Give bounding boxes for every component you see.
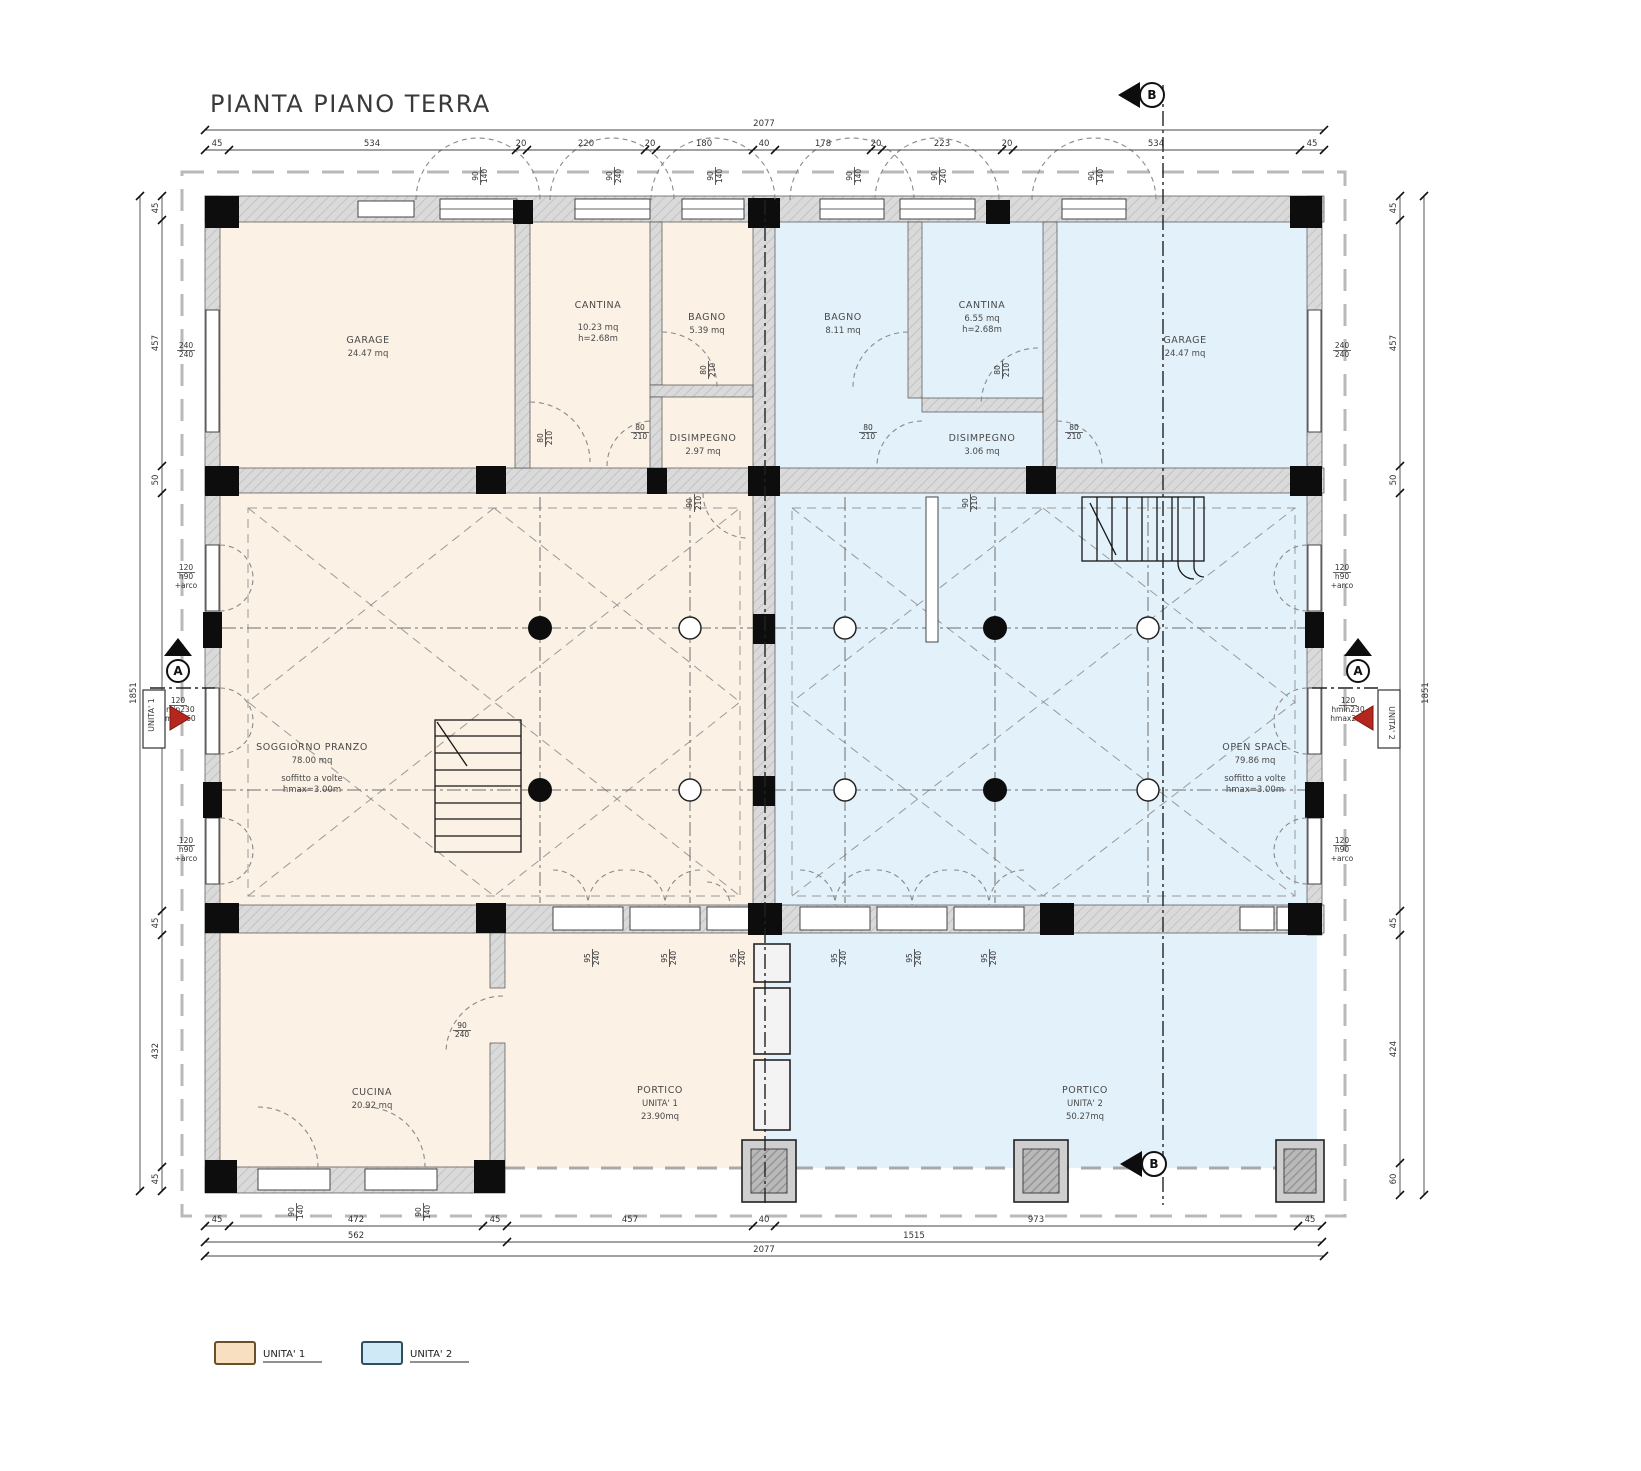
opening-size-label: 240 — [614, 169, 623, 184]
dimension-label: 45 — [151, 918, 161, 929]
portico-pillar — [1014, 1140, 1068, 1202]
opening-size-label: 90 — [287, 1207, 296, 1217]
dim-right-total: 1851 — [1421, 682, 1431, 704]
opening-size-label: 210 — [708, 363, 717, 378]
dimension-label: 457 — [151, 335, 161, 351]
opening-size-label: 90 — [457, 1021, 467, 1030]
room-soggiorno-note1: soffitto a volte — [281, 774, 342, 784]
opening-size-label: 90 — [685, 498, 694, 508]
room-garage2-area: 24.47 mq — [1165, 349, 1206, 359]
dimension-label: 424 — [1389, 1041, 1399, 1057]
dimension-label: 1515 — [903, 1231, 925, 1241]
legend-unit2-swatch — [362, 1342, 402, 1364]
opening-size-label: 140 — [480, 169, 489, 184]
room-disimpegno2-area: 3.06 mq — [964, 447, 999, 457]
unit2-tag-label: UNITA' 2 — [1387, 706, 1396, 740]
opening-size-label: 210 — [970, 496, 979, 511]
room-portico2-unit: UNITA' 2 — [1067, 1099, 1103, 1109]
dimension-label: 40 — [759, 139, 770, 149]
legend-unit1-label: UNITA' 1 — [263, 1349, 305, 1360]
room-cucina-area: 20.92 mq — [352, 1101, 393, 1111]
room-bagno2-area: 8.11 mq — [825, 326, 860, 336]
room-portico1-unit: UNITA' 1 — [642, 1099, 678, 1109]
opening-size-label: 240 — [939, 169, 948, 184]
opening-size-label: 120 — [179, 836, 194, 845]
opening-size-label: 80 — [863, 423, 873, 432]
opening-size-label: h90 — [179, 845, 194, 854]
room-openspace-note1: soffitto a volte — [1224, 774, 1285, 784]
unit1-floor-fill — [210, 204, 765, 1168]
room-portico1-name: PORTICO — [637, 1085, 683, 1096]
opening-size-label: 140 — [854, 169, 863, 184]
dimension-label: 45 — [490, 1215, 501, 1225]
room-disimpegno1-area: 2.97 mq — [685, 447, 720, 457]
dimension-label: 562 — [348, 1231, 364, 1241]
section-a-arrow-icon — [1344, 638, 1372, 656]
opening-size-label: 95 — [583, 953, 592, 963]
portico-pillar — [742, 1140, 796, 1202]
dimension-label: 45 — [212, 139, 223, 149]
room-garage1-area: 24.47 mq — [348, 349, 389, 359]
opening-size-label: 240 — [738, 951, 747, 966]
opening-size-label: 90 — [414, 1207, 423, 1217]
opening-size-label: 240 — [179, 341, 194, 350]
room-cantina2-area: 6.55 mq — [964, 314, 999, 324]
opening-size-label: 240 — [179, 350, 194, 359]
dimension-label: 20 — [871, 139, 882, 149]
dimension-label: 534 — [364, 139, 380, 149]
opening-size-label: 120 — [1335, 836, 1350, 845]
room-soggiorno-area: 78.00 mq — [292, 756, 333, 766]
room-bagno1-name: BAGNO — [688, 312, 726, 323]
opening-size-label: 210 — [694, 496, 703, 511]
opening-size-label: 80 — [699, 365, 708, 375]
portico-pillar — [1276, 1140, 1324, 1202]
dimension-label: 50 — [151, 475, 161, 486]
dim-bottom-segments: 45472454574097345 — [212, 1215, 1316, 1225]
section-b-letter: B — [1147, 88, 1156, 102]
dim-bottom-subtotals: 5621515 — [348, 1231, 925, 1241]
room-garage2-name: GARAGE — [1163, 335, 1206, 346]
opening-size-label: 240 — [592, 951, 601, 966]
dimension-label: 45 — [1305, 1215, 1316, 1225]
opening-size-label: 80 — [635, 423, 645, 432]
opening-size-label: h90 — [179, 572, 194, 581]
opening-size-label: h90 — [1335, 572, 1350, 581]
dimension-label: 178 — [815, 139, 831, 149]
dimension-label: 50 — [1389, 475, 1399, 486]
opening-size-label: 120 — [1335, 563, 1350, 572]
dimension-label: 432 — [151, 1043, 161, 1059]
unit2-entrance-tag: UNITA' 2 — [1353, 690, 1400, 748]
dimension-label: 40 — [759, 1215, 770, 1225]
opening-size-label: 80 — [1069, 423, 1079, 432]
opening-size-label: 95 — [980, 953, 989, 963]
room-openspace-area: 79.86 mq — [1235, 756, 1276, 766]
room-cantina1-height: h=2.68m — [578, 334, 618, 344]
legend-unit1-swatch — [215, 1342, 255, 1364]
floor-plan-page: PIANTA PIANO TERRA — [0, 0, 1641, 1471]
dimension-label: 45 — [151, 1174, 161, 1185]
floor-plan-drawing: PIANTA PIANO TERRA — [0, 0, 1641, 1471]
opening-size-label: 210 — [1002, 363, 1011, 378]
room-portico2-area: 50.27mq — [1066, 1112, 1104, 1122]
dimension-label: 180 — [696, 139, 712, 149]
page-title: PIANTA PIANO TERRA — [210, 90, 491, 118]
opening-size-label: 80 — [993, 365, 1002, 375]
legend: UNITA' 1 UNITA' 2 — [215, 1342, 469, 1364]
room-openspace-name: OPEN SPACE — [1222, 742, 1287, 753]
opening-size-label: 240 — [914, 951, 923, 966]
opening-size-label: 120 — [179, 563, 194, 572]
dim-top-segments: 45534202202018040178202232053445 — [212, 139, 1318, 149]
opening-size-label: 80 — [536, 433, 545, 443]
opening-size-label: 240 — [669, 951, 678, 966]
room-garage1-name: GARAGE — [346, 335, 389, 346]
dimension-label: 20 — [516, 139, 527, 149]
opening-size-label: 90 — [1087, 171, 1096, 181]
room-cantina1-name: CANTINA — [575, 300, 622, 311]
opening-size-label: 210 — [545, 431, 554, 446]
section-a-letter: A — [1353, 664, 1363, 678]
room-portico2-name: PORTICO — [1062, 1085, 1108, 1096]
room-cantina2-height: h=2.68m — [962, 325, 1002, 335]
section-a-arrow-icon — [164, 638, 192, 656]
room-bagno1-area: 5.39 mq — [689, 326, 724, 336]
opening-size-label: 240 — [1335, 341, 1350, 350]
unit2-floor-fill — [765, 204, 1317, 1168]
opening-size-label: 90 — [605, 171, 614, 181]
opening-size-label: 140 — [423, 1205, 432, 1220]
opening-size-label: 90 — [706, 171, 715, 181]
section-marker-b-top: B — [1118, 82, 1164, 108]
room-cantina1-area: 10.23 mq — [578, 323, 619, 333]
section-marker-a-right: A — [1344, 638, 1372, 682]
opening-size-label: 95 — [905, 953, 914, 963]
opening-size-label: hmin230 — [1331, 705, 1364, 714]
opening-size-label: 90 — [845, 171, 854, 181]
opening-size-label: +arco — [1331, 581, 1354, 590]
room-soggiorno-note2: hmax=3.00m — [283, 785, 341, 795]
dimension-label: 223 — [934, 139, 950, 149]
dimension-label: 973 — [1028, 1215, 1044, 1225]
dim-left-total: 1851 — [129, 682, 139, 704]
dimension-label: 45 — [1307, 139, 1318, 149]
section-b-arrow-icon — [1118, 82, 1140, 108]
dim-bottom-total: 2077 — [753, 1245, 775, 1255]
section-marker-a-left: A — [164, 638, 192, 682]
opening-size-label: 140 — [296, 1205, 305, 1220]
opening-size-label: 120 — [1341, 696, 1356, 705]
room-bagno2-name: BAGNO — [824, 312, 862, 323]
opening-size-label: 95 — [830, 953, 839, 963]
opening-size-label: +arco — [175, 854, 198, 863]
opening-size-label: 210 — [633, 432, 648, 441]
opening-size-label: 90 — [961, 498, 970, 508]
dim-top-total: 2077 — [753, 119, 775, 129]
opening-size-label: 240 — [839, 951, 848, 966]
room-disimpegno2-name: DISIMPEGNO — [949, 433, 1016, 444]
opening-size-label: 240 — [455, 1030, 470, 1039]
dimension-label: 220 — [578, 139, 594, 149]
opening-size-label: 90 — [471, 171, 480, 181]
room-disimpegno1-name: DISIMPEGNO — [670, 433, 737, 444]
opening-size-label: 140 — [1096, 169, 1105, 184]
opening-size-label: h90 — [1335, 845, 1350, 854]
opening-size-label: 90 — [930, 171, 939, 181]
room-portico1-area: 23.90mq — [641, 1112, 679, 1122]
opening-size-label: 240 — [989, 951, 998, 966]
dimension-label: 45 — [1389, 918, 1399, 929]
opening-size-label: 140 — [715, 169, 724, 184]
unit1-tag-label: UNITA' 1 — [147, 698, 156, 732]
room-openspace-note2: hmax=3.00m — [1226, 785, 1284, 795]
section-a-letter: A — [173, 664, 183, 678]
opening-size-label: 210 — [1067, 432, 1082, 441]
room-soggiorno-name: SOGGIORNO PRANZO — [256, 742, 368, 753]
room-cantina2-name: CANTINA — [959, 300, 1006, 311]
opening-size-label: 95 — [660, 953, 669, 963]
room-cucina-name: CUCINA — [352, 1087, 392, 1098]
section-b-letter: B — [1149, 1157, 1158, 1171]
dimension-label: 472 — [348, 1215, 364, 1225]
dimension-label: 45 — [212, 1215, 223, 1225]
dimension-label: 20 — [645, 139, 656, 149]
dimension-label: 534 — [1148, 139, 1164, 149]
dimension-label: 60 — [1389, 1174, 1399, 1185]
opening-size-label: 95 — [729, 953, 738, 963]
dimension-label: 457 — [622, 1215, 638, 1225]
opening-size-label: +arco — [175, 581, 198, 590]
dimension-label: 457 — [1389, 335, 1399, 351]
dimension-label: 20 — [1002, 139, 1013, 149]
legend-unit2-label: UNITA' 2 — [410, 1349, 452, 1360]
dimension-label: 45 — [151, 203, 161, 214]
opening-size-label: +arco — [1331, 854, 1354, 863]
dimension-label: 45 — [1389, 203, 1399, 214]
opening-size-label: 240 — [1335, 350, 1350, 359]
opening-size-label: 210 — [861, 432, 876, 441]
opening-size-label: 120 — [171, 696, 186, 705]
